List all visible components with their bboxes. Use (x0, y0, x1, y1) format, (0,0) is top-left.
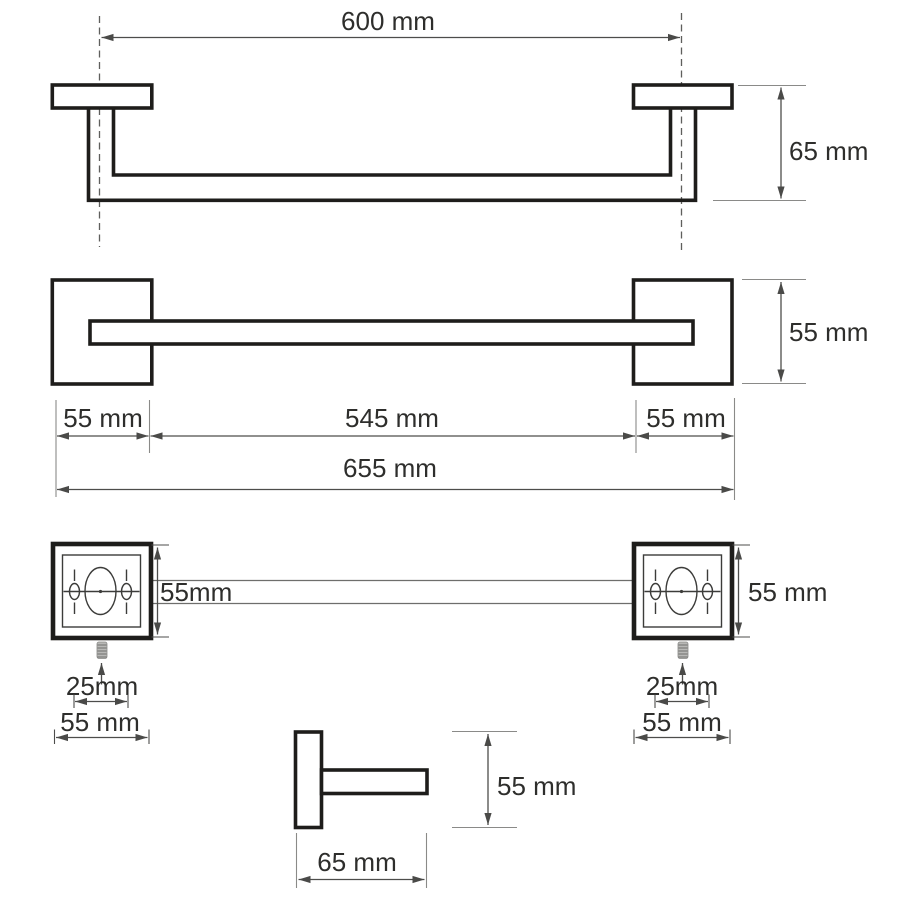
top-wall-plate-right (634, 85, 733, 108)
plate-detail-left: 55mm 25mm 55 mm (53, 544, 634, 744)
detail-left-center-dot (99, 590, 102, 593)
bracket-wall-plate (296, 732, 322, 828)
dim-label-65-top: 65 mm (789, 136, 868, 166)
dim-label-600: 600 mm (341, 6, 435, 36)
screw-body (97, 642, 107, 659)
mounting-screw-icon (97, 642, 107, 659)
detail-right-label-width: 55 mm (642, 707, 721, 737)
screw-body (678, 642, 688, 659)
top-bar-inner-outline (114, 107, 671, 176)
dim-label-55-right: 55 mm (646, 403, 725, 433)
dim-label-545: 545 mm (345, 403, 439, 433)
dimension-rows: 55 mm 545 mm 55 mm 655 mm (56, 398, 735, 500)
plate-detail-right: 55 mm 25mm 55 mm (634, 544, 827, 744)
bracket-arm (322, 770, 428, 794)
detail-right-center-dot (680, 590, 683, 593)
detail-left-label-25: 25mm (66, 671, 138, 701)
dim-label-55-front: 55 mm (789, 317, 868, 347)
drawing-canvas: 600 mm 65 mm 55 mm 55 mm 545 mm 55 mm 65… (0, 0, 900, 900)
detail-left-label-height: 55mm (160, 577, 232, 607)
mounting-screw-icon (678, 642, 688, 659)
top-wall-plate-left (52, 85, 152, 108)
dim-label-55-left: 55 mm (63, 403, 142, 433)
bracket-side-view: 55 mm 65 mm (296, 732, 577, 889)
technical-drawing: 600 mm 65 mm 55 mm 55 mm 545 mm 55 mm 65… (0, 0, 900, 900)
front-bar (90, 321, 693, 344)
detail-left-label-width: 55 mm (60, 707, 139, 737)
dim-label-65-bracket: 65 mm (317, 847, 396, 877)
detail-right-label-25: 25mm (646, 671, 718, 701)
dim-label-655: 655 mm (343, 453, 437, 483)
front-view: 55 mm (52, 280, 868, 385)
dim-label-55-bracket: 55 mm (497, 771, 576, 801)
top-view: 600 mm 65 mm (52, 6, 868, 250)
top-bar-outer-outline (89, 107, 696, 201)
detail-right-label-height: 55 mm (748, 577, 827, 607)
